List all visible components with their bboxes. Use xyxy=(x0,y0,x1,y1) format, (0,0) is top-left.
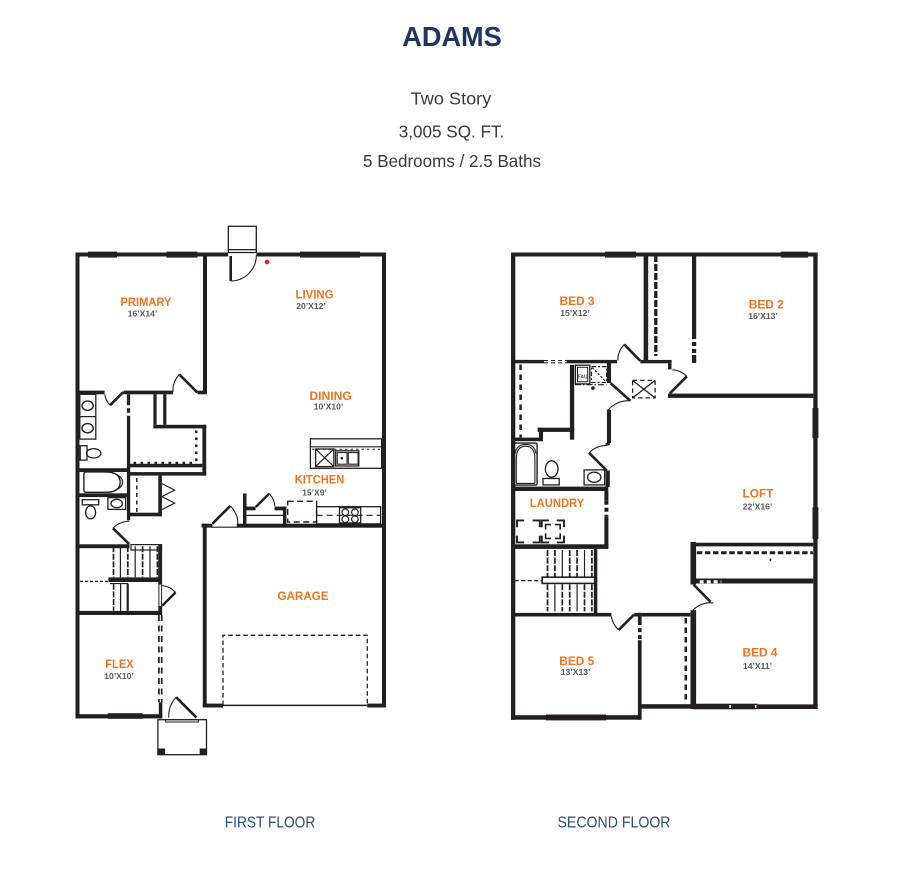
svg-text:PRIMARY: PRIMARY xyxy=(121,295,173,309)
svg-text:15’X9’: 15’X9’ xyxy=(302,488,327,498)
svg-text:16’X13’: 16’X13’ xyxy=(748,311,778,321)
svg-text:15’X12’: 15’X12’ xyxy=(560,308,590,318)
svg-text:LIVING: LIVING xyxy=(296,288,334,302)
svg-text:LAUNDRY: LAUNDRY xyxy=(530,496,585,510)
svg-text:BED 5: BED 5 xyxy=(559,654,594,668)
svg-text:10’X10’: 10’X10’ xyxy=(314,402,344,412)
svg-text:14’X11’: 14’X11’ xyxy=(743,661,772,671)
svg-text:GARAGE: GARAGE xyxy=(278,589,329,603)
svg-text:5 Bedrooms / 2.5 Baths: 5 Bedrooms / 2.5 Baths xyxy=(363,151,541,171)
svg-text:22’X16’: 22’X16’ xyxy=(743,501,773,511)
svg-text:BED 3: BED 3 xyxy=(560,294,595,308)
svg-text:FAU: FAU xyxy=(578,375,588,381)
svg-text:KITCHEN: KITCHEN xyxy=(295,473,345,487)
svg-text:SECOND FLOOR: SECOND FLOOR xyxy=(558,815,671,832)
svg-text:3,005 SQ. FT.: 3,005 SQ. FT. xyxy=(399,122,505,142)
svg-text:BED 4: BED 4 xyxy=(743,645,778,659)
svg-text:LOFT: LOFT xyxy=(743,486,774,500)
svg-text:FLEX: FLEX xyxy=(105,657,134,671)
svg-text:10’X10’: 10’X10’ xyxy=(104,671,134,681)
svg-text:FIRST FLOOR: FIRST FLOOR xyxy=(225,815,316,832)
svg-text:BED 2: BED 2 xyxy=(749,298,784,312)
svg-text:20’X12’: 20’X12’ xyxy=(296,301,326,311)
svg-text:Two Story: Two Story xyxy=(411,89,492,109)
svg-text:13’X13’: 13’X13’ xyxy=(561,667,591,677)
svg-text:16’X14’: 16’X14’ xyxy=(128,309,158,319)
svg-text:ADAMS: ADAMS xyxy=(402,21,502,52)
